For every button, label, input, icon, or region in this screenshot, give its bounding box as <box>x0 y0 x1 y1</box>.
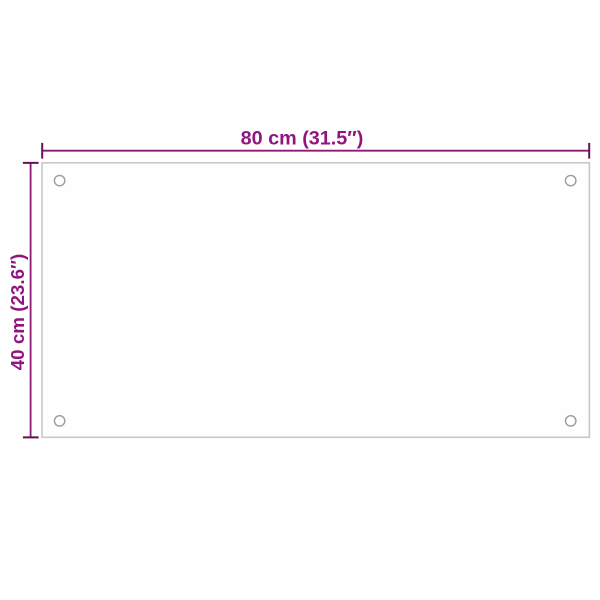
svg-text:80 cm (31.5″): 80 cm (31.5″) <box>241 128 364 150</box>
svg-text:40 cm (23.6″): 40 cm (23.6″) <box>7 254 28 371</box>
